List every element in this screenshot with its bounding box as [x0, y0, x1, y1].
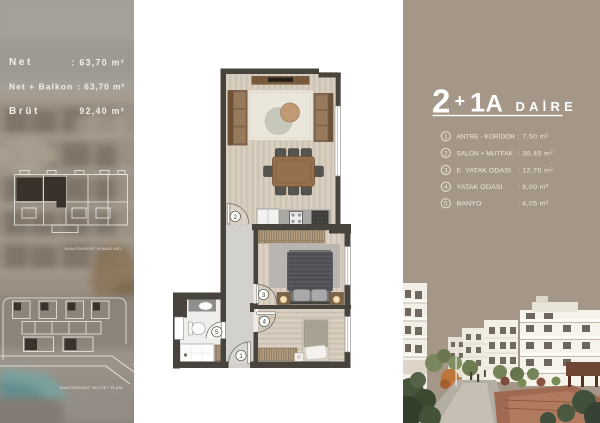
svg-text:A: A — [486, 91, 503, 118]
svg-text:ANTRE - KORİDOR: ANTRE - KORİDOR — [457, 132, 516, 141]
svg-text:92,40 m²: 92,40 m² — [79, 106, 125, 116]
svg-text:YATAK ODASI: YATAK ODASI — [457, 184, 503, 191]
svg-text:1: 1 — [444, 134, 448, 141]
svg-text:: 12,70 m²: : 12,70 m² — [518, 167, 554, 174]
svg-text:4: 4 — [444, 184, 448, 191]
svg-text:: 4,05 m²: : 4,05 m² — [518, 201, 550, 208]
svg-text:: 63,70 m²: : 63,70 m² — [71, 58, 125, 68]
svg-text:: 63,70 m²: : 63,70 m² — [77, 82, 125, 92]
svg-text:5: 5 — [444, 201, 448, 208]
svg-text:2: 2 — [432, 83, 450, 120]
svg-text:Net: Net — [9, 57, 33, 68]
svg-text:4: 4 — [263, 319, 267, 326]
svg-text:Brüt: Brüt — [9, 106, 40, 117]
svg-text:+: + — [455, 91, 466, 111]
svg-text:DAİRE: DAİRE — [516, 99, 577, 114]
svg-text:BANYO: BANYO — [457, 201, 482, 208]
svg-text:ANAHTARKENT VAZİYET PLANI: ANAHTARKENT VAZİYET PLANI — [60, 385, 123, 390]
svg-text:2: 2 — [444, 150, 448, 157]
svg-text:3: 3 — [262, 292, 266, 299]
svg-text:3: 3 — [444, 167, 448, 174]
svg-text:1: 1 — [239, 353, 243, 360]
svg-text:E. YATAK ODASI: E. YATAK ODASI — [457, 167, 512, 174]
svg-text:1: 1 — [470, 88, 485, 118]
svg-text:Net + Balkon: Net + Balkon — [9, 82, 73, 92]
svg-text:ANAHTARKENT KONAKLARI: ANAHTARKENT KONAKLARI — [65, 247, 121, 251]
svg-text:5: 5 — [215, 329, 219, 336]
svg-text:: 9,00 m²: : 9,00 m² — [518, 184, 550, 191]
svg-text:SALON + MUTFAK: SALON + MUTFAK — [457, 150, 514, 157]
svg-text:: 7,50 m²: : 7,50 m² — [518, 134, 550, 141]
svg-text:: 30,45 m²: : 30,45 m² — [518, 150, 554, 157]
svg-text:2: 2 — [234, 214, 238, 221]
